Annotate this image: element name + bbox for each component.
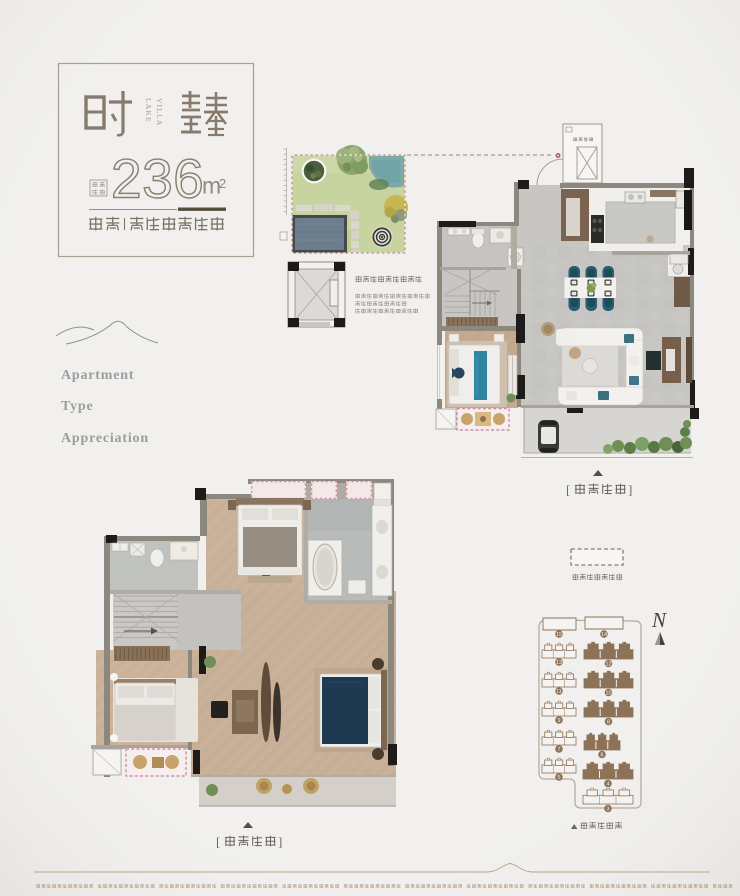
svg-text:6: 6 [600, 753, 603, 759]
svg-text:2: 2 [219, 176, 226, 191]
svg-text:8: 8 [607, 720, 610, 726]
svg-text:]: ] [278, 834, 282, 849]
svg-text:236: 236 [111, 148, 204, 210]
svg-text:12: 12 [605, 662, 611, 668]
svg-text:3: 3 [606, 807, 609, 813]
svg-text:Appreciation: Appreciation [61, 431, 149, 446]
svg-text:LAKE: LAKE [144, 98, 153, 123]
svg-text:Type: Type [61, 399, 94, 414]
svg-text:14: 14 [601, 632, 607, 638]
svg-text:[: [ [216, 834, 220, 849]
svg-text:5: 5 [557, 775, 560, 781]
svg-text:N: N [651, 608, 667, 632]
svg-text:4: 4 [606, 782, 609, 788]
svg-text:9: 9 [557, 718, 560, 724]
svg-text:11: 11 [556, 689, 562, 695]
svg-text:10: 10 [605, 691, 611, 697]
svg-text:]: ] [628, 482, 632, 497]
svg-text:VILLA: VILLA [155, 98, 164, 127]
svg-text:Apartment: Apartment [61, 368, 134, 383]
svg-text:15: 15 [556, 632, 562, 638]
svg-text:13: 13 [556, 660, 562, 666]
svg-text:[: [ [566, 482, 570, 497]
svg-text:7: 7 [557, 747, 560, 753]
